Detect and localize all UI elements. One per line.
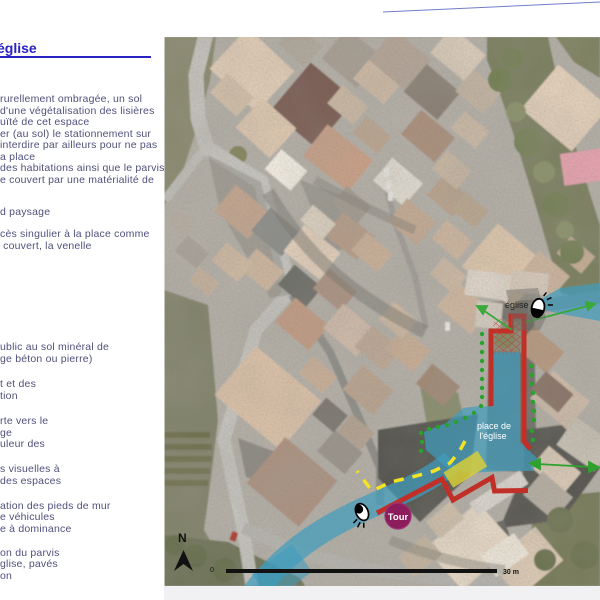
svg-text:30 m: 30 m bbox=[503, 569, 519, 576]
svg-text:N: N bbox=[178, 531, 187, 545]
svg-text:place de: place de bbox=[477, 421, 511, 431]
svg-text:0: 0 bbox=[210, 567, 214, 574]
svg-text:église: église bbox=[505, 300, 529, 310]
svg-text:Tour: Tour bbox=[388, 512, 409, 523]
svg-text:l'église: l'église bbox=[479, 431, 506, 441]
